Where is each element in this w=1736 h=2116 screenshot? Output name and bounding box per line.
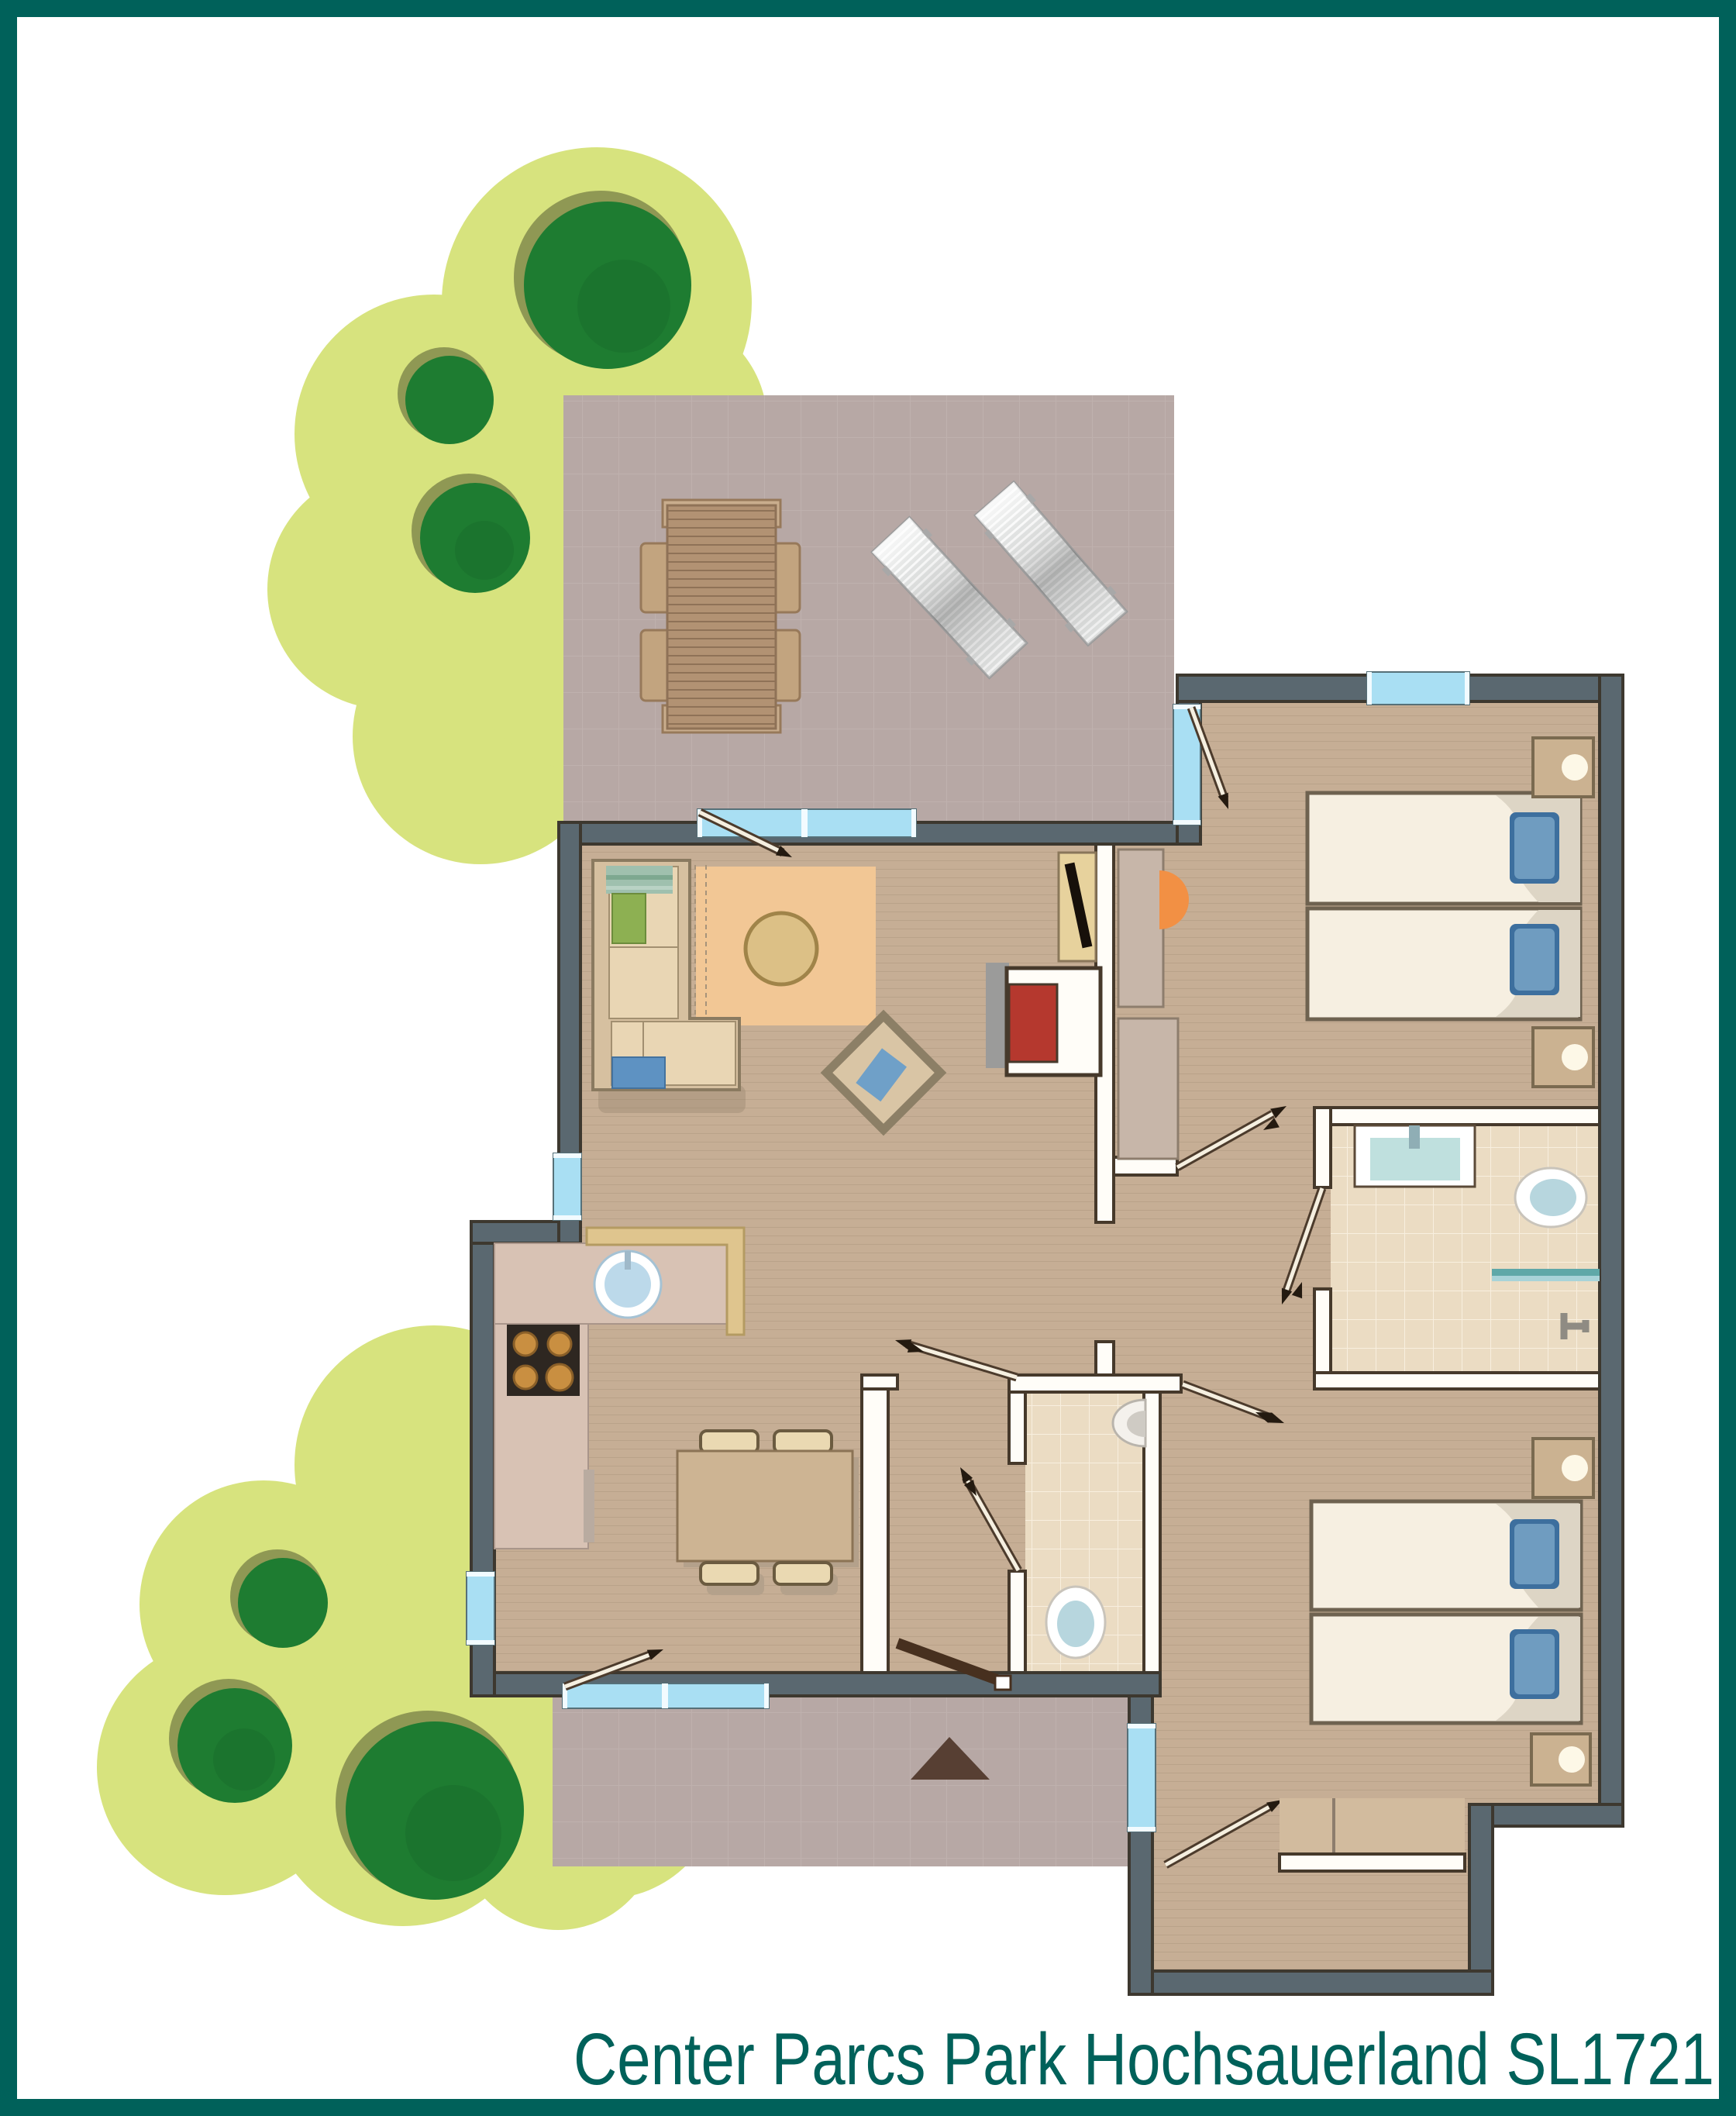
svg-text:Center Parcs Park Hochsauerlan: Center Parcs Park Hochsauerland SL1721 bbox=[573, 2018, 1714, 2100]
